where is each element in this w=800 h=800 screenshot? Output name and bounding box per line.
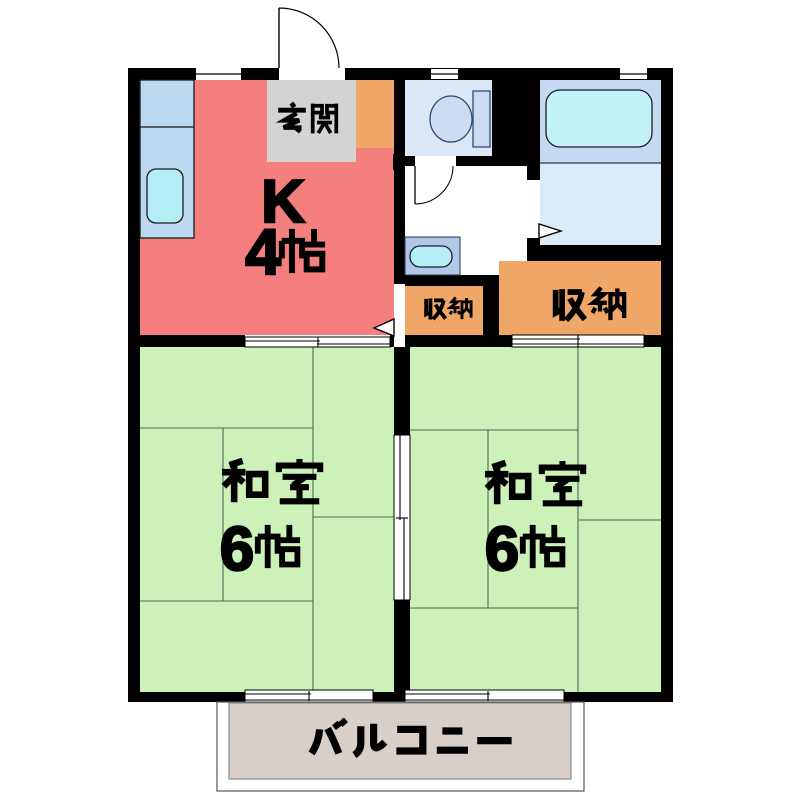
svg-text:4: 4 xyxy=(245,216,281,288)
svg-text:6: 6 xyxy=(220,515,254,584)
svg-text:6: 6 xyxy=(485,515,519,584)
